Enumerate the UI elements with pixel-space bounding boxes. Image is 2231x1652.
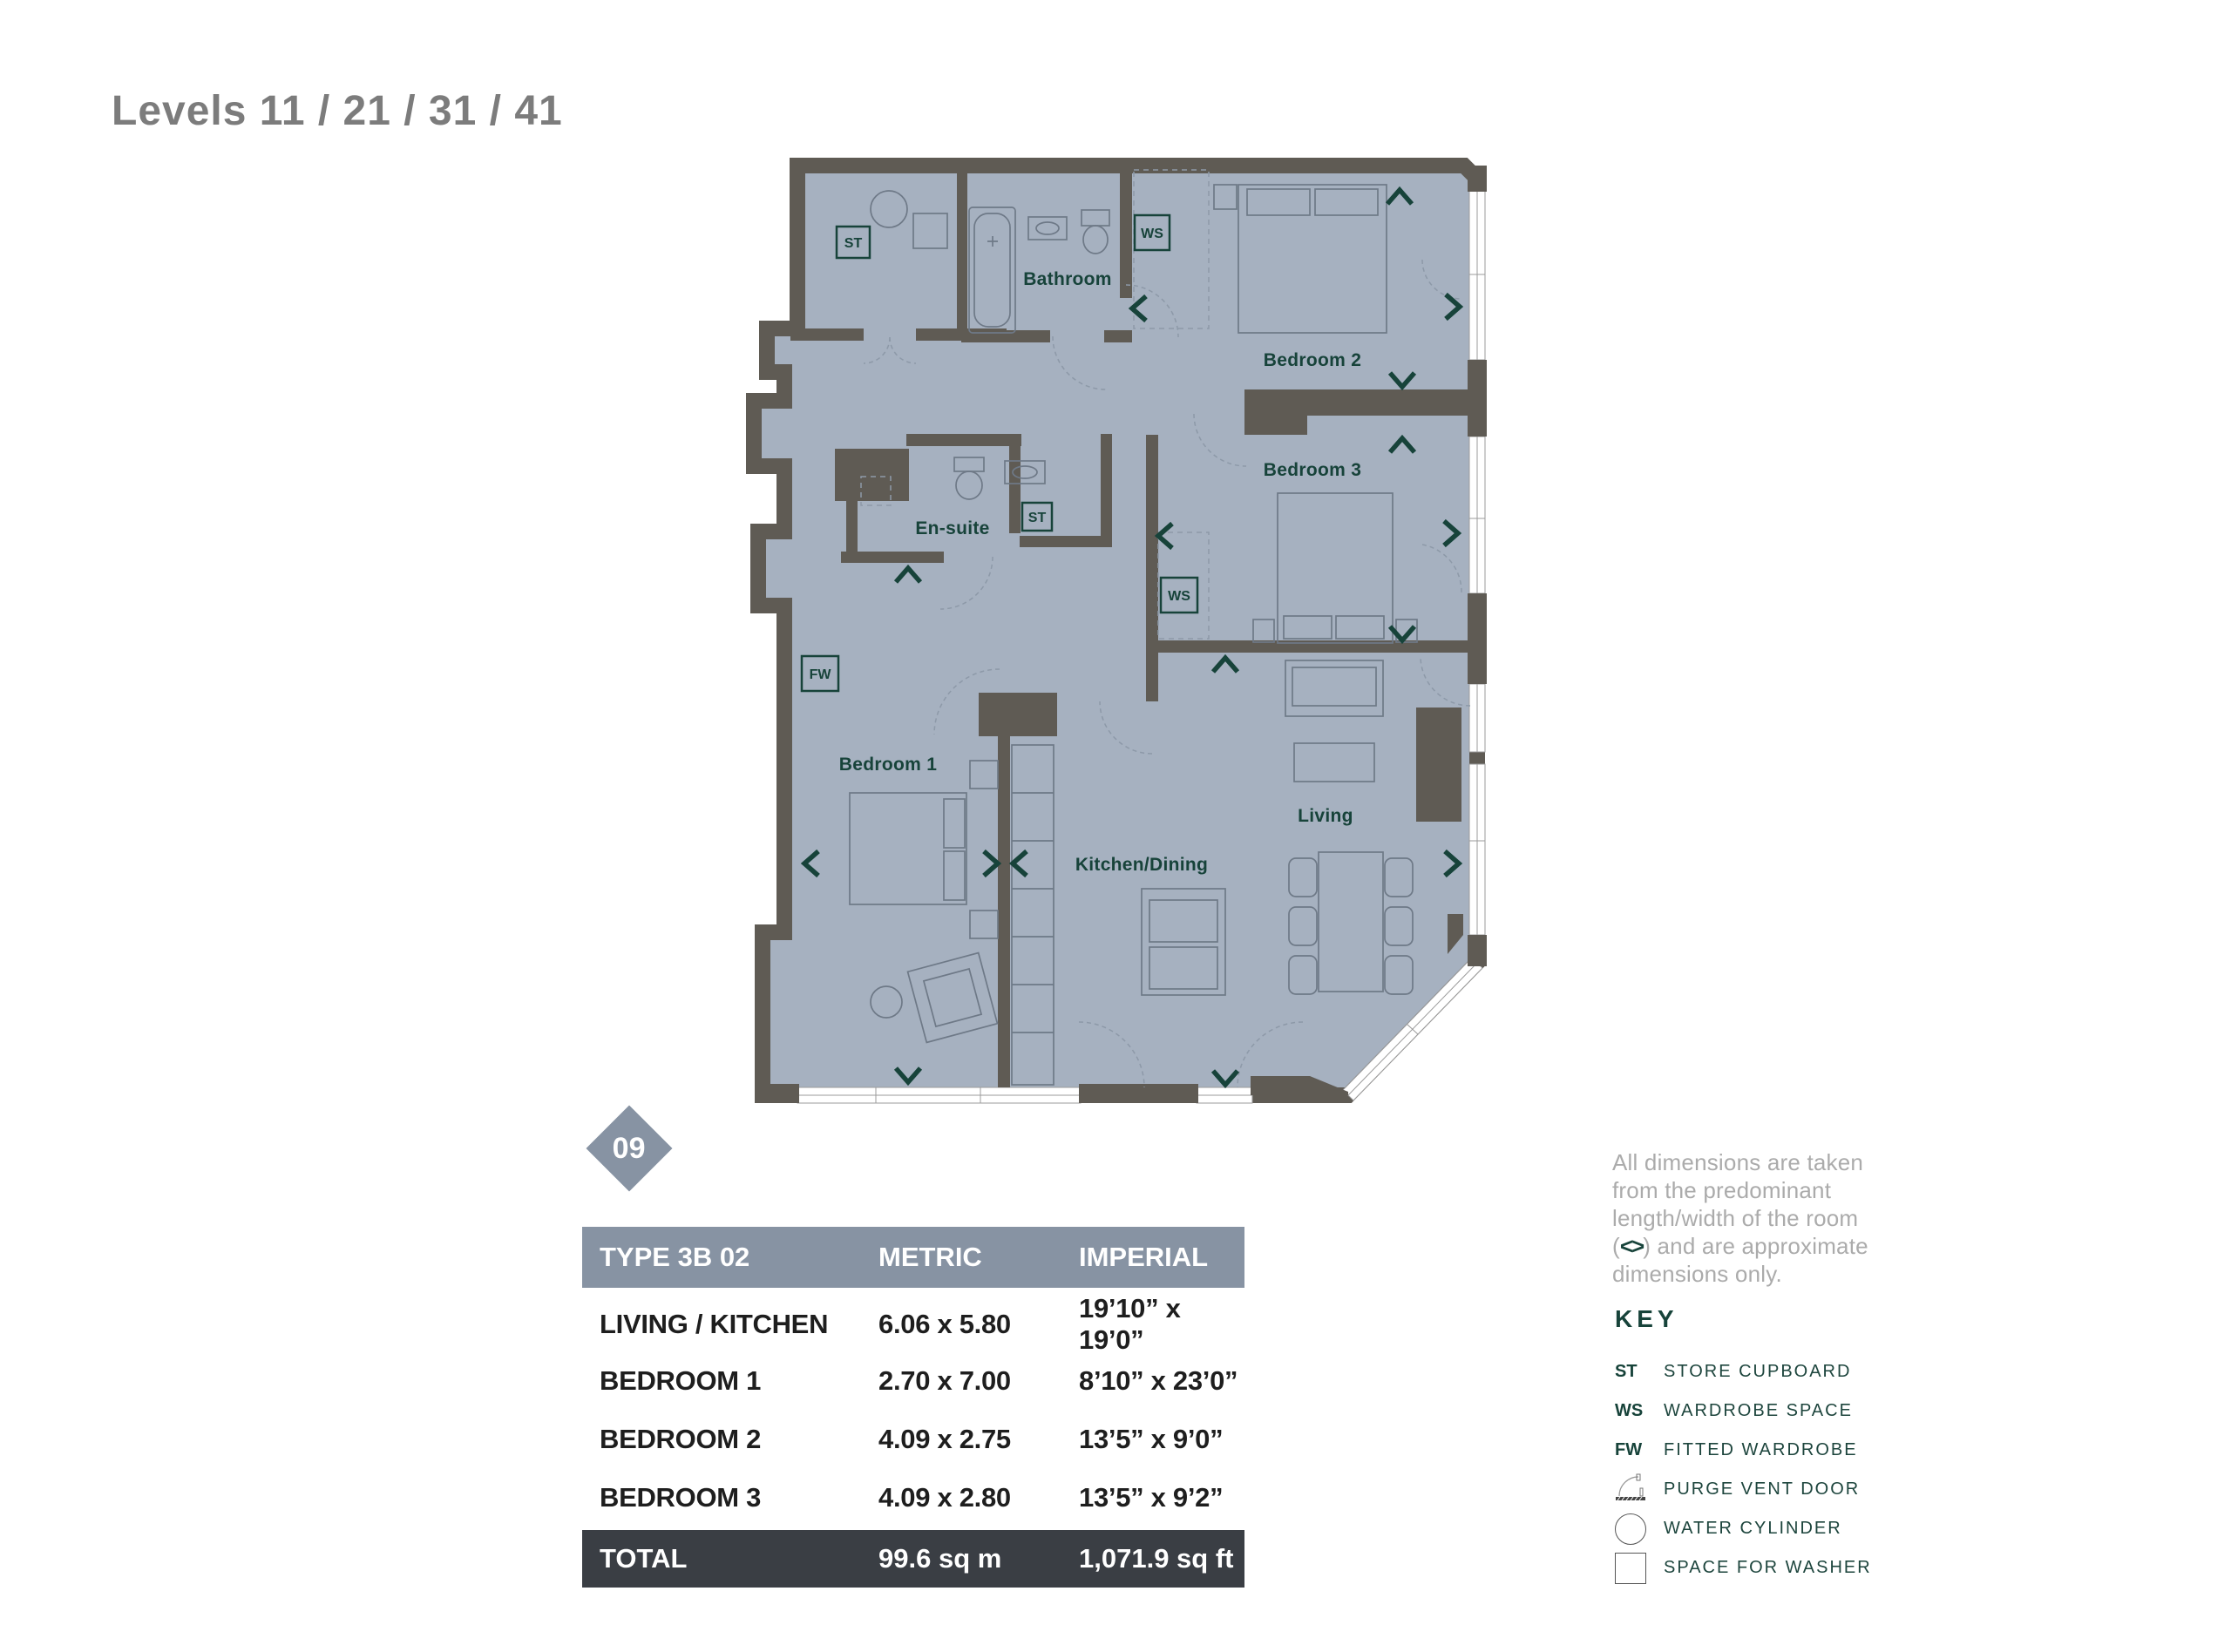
- row-imperial: 19’10” x 19’0”: [1061, 1293, 1244, 1356]
- plan-key: KEY ST STORE CUPBOARD WS WARDROBE SPACE …: [1615, 1305, 1911, 1588]
- dimensions-table: TYPE 3B 02 METRIC IMPERIAL LIVING / KITC…: [582, 1227, 1244, 1588]
- st-symbol: ST: [1615, 1362, 1664, 1382]
- tv-unit: [1416, 708, 1461, 822]
- total-label: TOTAL: [582, 1543, 861, 1574]
- fw-symbol: FW: [1615, 1440, 1664, 1460]
- total-metric: 99.6 sq m: [861, 1543, 1061, 1574]
- room-label-bedroom3: Bedroom 3: [1264, 460, 1361, 480]
- row-imperial: 13’5” x 9’2”: [1061, 1482, 1244, 1513]
- table-header-imperial: IMPERIAL: [1061, 1242, 1244, 1273]
- key-item-space-for-washer: SPACE FOR WASHER: [1615, 1548, 1911, 1588]
- key-item-wardrobe-space: WS WARDROBE SPACE: [1615, 1391, 1911, 1431]
- row-room: BEDROOM 2: [582, 1424, 861, 1455]
- room-label-living: Living: [1298, 806, 1353, 826]
- row-room: LIVING / KITCHEN: [582, 1309, 861, 1340]
- total-imperial: 1,071.9 sq ft: [1061, 1543, 1244, 1574]
- ws-marker-bedroom2: WS: [1141, 227, 1163, 241]
- windows-right: [1469, 189, 1485, 935]
- row-metric: 2.70 x 7.00: [861, 1365, 1061, 1397]
- fw-marker-bedroom1: FW: [810, 667, 832, 682]
- dimensions-note: All dimensions are taken from the predom…: [1612, 1148, 1893, 1288]
- table-row: BEDROOM 3 4.09 x 2.80 13’5” x 9’2”: [582, 1468, 1244, 1527]
- row-room: BEDROOM 3: [582, 1482, 861, 1513]
- page-title: Levels 11 / 21 / 31 / 41: [112, 87, 563, 135]
- note-text-after: ) and are approximate dimensions only.: [1612, 1233, 1868, 1287]
- st-marker-utility: ST: [844, 236, 863, 251]
- row-metric: 4.09 x 2.75: [861, 1424, 1061, 1455]
- unit-number-badge: 09: [587, 1106, 673, 1192]
- row-metric: 6.06 x 5.80: [861, 1309, 1061, 1340]
- dimension-arrows-glyph: <>: [1620, 1233, 1643, 1259]
- room-label-bedroom1: Bedroom 1: [839, 755, 937, 775]
- table-row: LIVING / KITCHEN 6.06 x 5.80 19’10” x 19…: [582, 1293, 1244, 1351]
- table-row: BEDROOM 1 2.70 x 7.00 8’10” x 23’0”: [582, 1351, 1244, 1410]
- key-item-water-cylinder: WATER CYLINDER: [1615, 1509, 1911, 1548]
- table-body: LIVING / KITCHEN 6.06 x 5.80 19’10” x 19…: [582, 1288, 1244, 1527]
- row-room: BEDROOM 1: [582, 1365, 861, 1397]
- table-total-row: TOTAL 99.6 sq m 1,071.9 sq ft: [582, 1530, 1244, 1588]
- water-cylinder-icon: [1615, 1513, 1646, 1545]
- unit-number: 09: [613, 1131, 646, 1165]
- key-item-purge-vent-door: PURGE VENT DOOR: [1615, 1470, 1911, 1509]
- page: Levels 11 / 21 / 31 / 41: [0, 0, 2231, 1652]
- key-item-fitted-wardrobe: FW FITTED WARDROBE: [1615, 1431, 1911, 1470]
- ws-marker-bedroom3: WS: [1168, 589, 1190, 604]
- room-label-ensuite: En-suite: [915, 518, 989, 538]
- key-items: ST STORE CUPBOARD WS WARDROBE SPACE FW F…: [1615, 1352, 1911, 1588]
- floor-plan-svg: ST ST WS WS FW Bathroom Bedroom 2 Bedroo…: [745, 144, 1529, 1146]
- table-header-metric: METRIC: [861, 1242, 1061, 1273]
- floor-plan: ST ST WS WS FW Bathroom Bedroom 2 Bedroo…: [745, 144, 1529, 1146]
- space-for-washer-icon: [1615, 1553, 1646, 1584]
- table-row: BEDROOM 2 4.09 x 2.75 13’5” x 9’0”: [582, 1410, 1244, 1468]
- table-header-type: TYPE 3B 02: [582, 1242, 861, 1273]
- ws-symbol: WS: [1615, 1401, 1664, 1421]
- room-label-bathroom: Bathroom: [1023, 269, 1112, 289]
- apartment-outline: [754, 166, 1477, 1095]
- key-heading: KEY: [1615, 1305, 1911, 1333]
- st-marker-hall: ST: [1028, 511, 1047, 525]
- row-metric: 4.09 x 2.80: [861, 1482, 1061, 1513]
- room-label-bedroom2: Bedroom 2: [1264, 350, 1361, 370]
- row-imperial: 8’10” x 23’0”: [1061, 1365, 1244, 1397]
- table-header-row: TYPE 3B 02 METRIC IMPERIAL: [582, 1227, 1244, 1288]
- row-imperial: 13’5” x 9’0”: [1061, 1424, 1244, 1455]
- room-label-kitchen-dining: Kitchen/Dining: [1075, 855, 1208, 875]
- key-item-store-cupboard: ST STORE CUPBOARD: [1615, 1352, 1911, 1391]
- purge-vent-door-icon: [1615, 1473, 1664, 1506]
